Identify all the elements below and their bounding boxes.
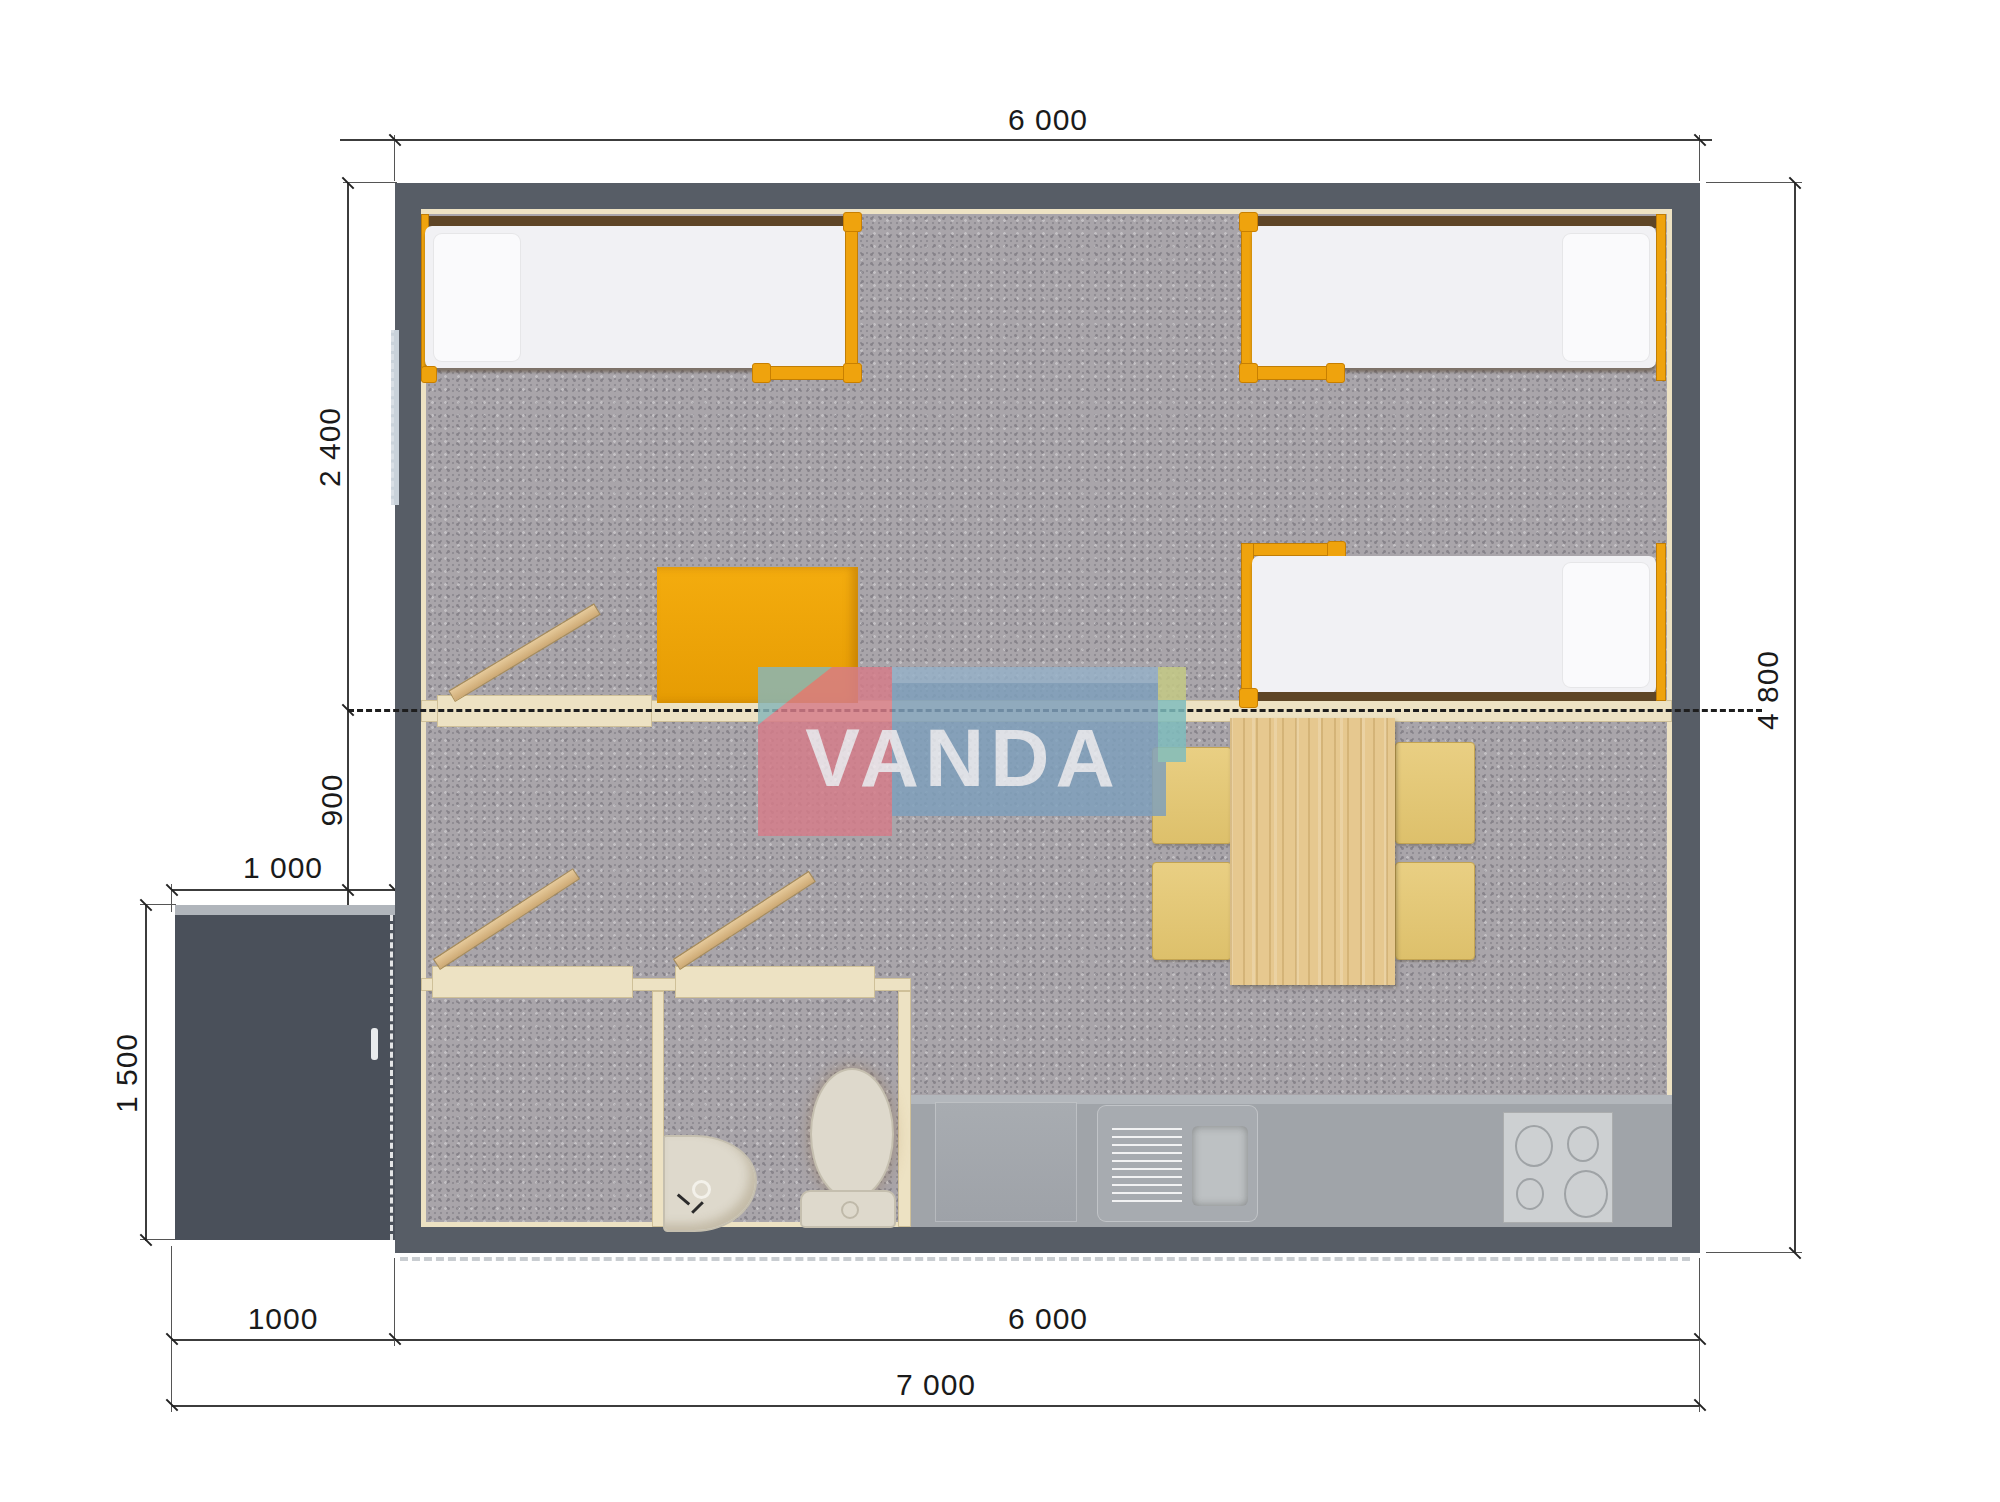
bed3-frame-right (1656, 543, 1666, 701)
ext-bottom-bodyleft (394, 1258, 395, 1346)
kitchen-cabinet (935, 1102, 1077, 1222)
dim-line-right (1794, 183, 1796, 1253)
toilet-flush-button (841, 1201, 859, 1219)
chair-bottom-left (1152, 862, 1232, 960)
burner-bottom-right (1564, 1170, 1608, 1218)
bed1-knob-bl (421, 366, 437, 383)
dim-label-bottom-total: 7 000 (881, 1368, 991, 1402)
bed2-footboard (1254, 366, 1334, 380)
bed3-headboard (1241, 543, 1339, 556)
floor-plan-canvas: 6 000 4 800 2 400 900 1 000 1 500 1000 6… (0, 0, 2000, 1502)
bed2-frame-right (1656, 214, 1666, 381)
toilet-lid (810, 1068, 894, 1200)
entrance-door-dashes (390, 915, 393, 1240)
siding-dashes-left-upper (391, 200, 394, 695)
bed1-frame-right (845, 214, 858, 381)
bathroom-door-casing-right (675, 966, 875, 998)
bed2-knob-foot (1326, 363, 1345, 383)
dim-label-porch-width: 1 000 (228, 851, 338, 885)
ext-right-bottom (1706, 1252, 1802, 1253)
ext-right-top (1706, 182, 1802, 183)
bed1-knob-tr (843, 212, 862, 232)
watermark-blue-highlight (892, 667, 1166, 683)
dim-line-porch-top (172, 889, 396, 891)
porch (175, 905, 395, 1240)
watermark-brand-text: VANDA (770, 712, 1156, 804)
dim-label-bedroom-depth: 2 400 (313, 392, 347, 502)
bathroom-door-casing-left (432, 966, 633, 998)
dim-label-porch-depth: 1 500 (110, 1018, 144, 1128)
bed1-knob-foot (752, 363, 771, 383)
watermark-olive-square (1158, 667, 1186, 700)
dim-label-bottom-body: 6 000 (993, 1302, 1103, 1336)
watermark-teal-square (1158, 700, 1186, 762)
entrance-door-handle (371, 1028, 378, 1060)
bed1-knob-br (843, 363, 862, 383)
siding-dashes-bottom (400, 1257, 1690, 1261)
bed2-pillow (1562, 233, 1650, 362)
bed1-pillow (433, 233, 521, 362)
washbasin-drain (692, 1180, 711, 1199)
burner-top-left (1515, 1125, 1553, 1167)
chair-bottom-right (1395, 862, 1475, 960)
bed3-foot-shadow (1252, 692, 1656, 701)
ext-bottom-right (1699, 1258, 1700, 1412)
bed2-knob-bl (1239, 363, 1258, 383)
bed2-knob-tl (1239, 212, 1258, 232)
dim-label-top-width: 6 000 (993, 103, 1103, 137)
bed3-knob-bl (1239, 688, 1258, 708)
chair-top-right (1395, 742, 1475, 844)
sink-drainboard (1112, 1128, 1182, 1204)
bathroom-wall-right (898, 991, 911, 1227)
porch-threshold (175, 905, 395, 915)
dim-line-porch-left (145, 905, 147, 1241)
burner-bottom-left (1516, 1178, 1544, 1210)
dim-label-hall-depth: 900 (315, 745, 349, 855)
dining-table (1230, 718, 1395, 985)
dim-label-right-height: 4 800 (1751, 635, 1785, 745)
bed3-pillow (1562, 562, 1650, 688)
ext-left-top (343, 182, 397, 183)
dim-label-bottom-porch: 1000 (228, 1302, 338, 1336)
ext-bottom-porchleft (171, 1246, 172, 1412)
burner-top-right (1567, 1126, 1599, 1162)
dim-line-bottom-row2 (172, 1405, 1700, 1407)
sink-basin (1192, 1126, 1248, 1206)
dim-line-top (340, 139, 1712, 141)
dim-line-bottom-row1 (172, 1339, 1700, 1341)
bed1-footboard (758, 366, 846, 380)
